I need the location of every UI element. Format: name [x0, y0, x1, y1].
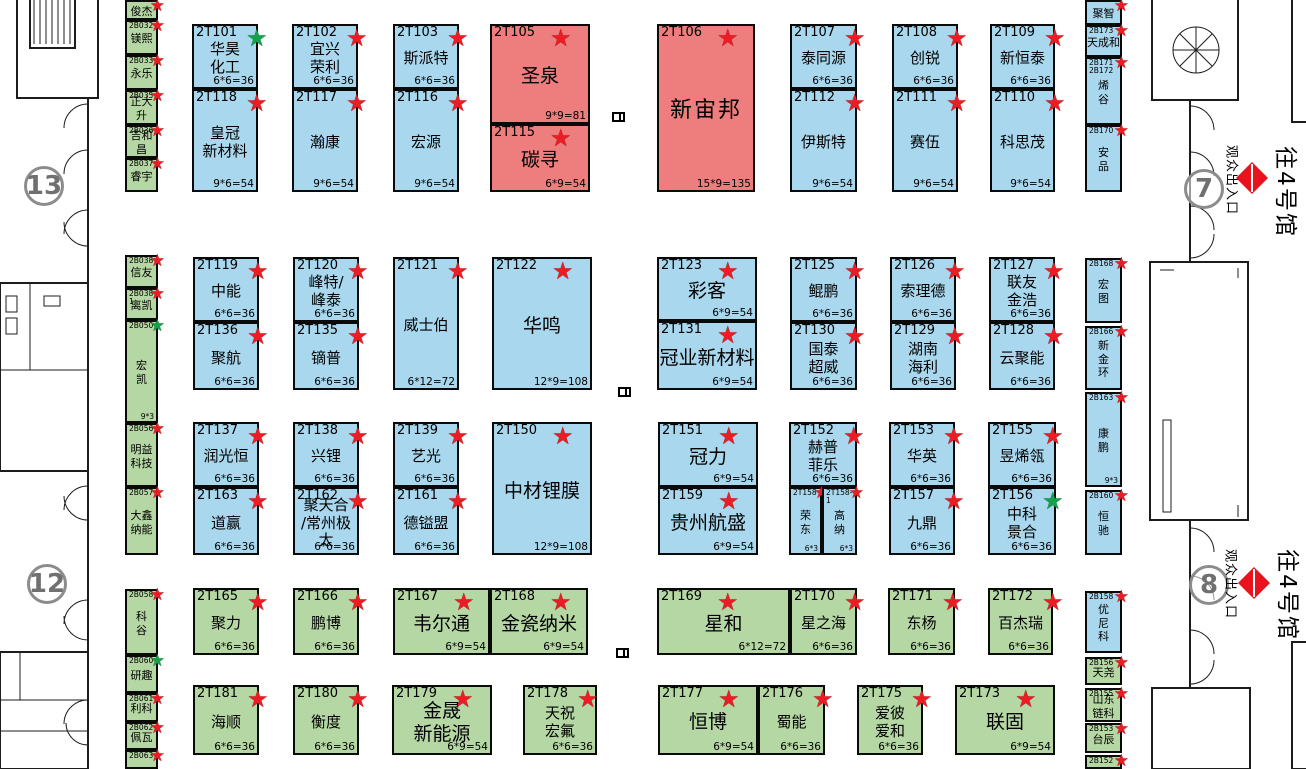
to-hall-4-label: 往4号馆: [1273, 549, 1306, 641]
to-hall-4-label: 往4号馆: [1271, 146, 1305, 238]
gates-and-exits: 13127观众出入口往4号馆8观众出入口往4号馆: [0, 0, 1306, 769]
exit-diamond-icon: [1235, 161, 1269, 195]
gate-number-12: 12: [27, 564, 67, 604]
gate-number-7: 7: [1184, 169, 1224, 209]
exhibition-hall-floorplan: 2T101★华昊 化工6*6=362T118★皇冠 新材料9*6=542T102…: [0, 0, 1306, 769]
exit-diamond-icon: [1237, 566, 1271, 600]
gate-number-13: 13: [24, 166, 64, 206]
